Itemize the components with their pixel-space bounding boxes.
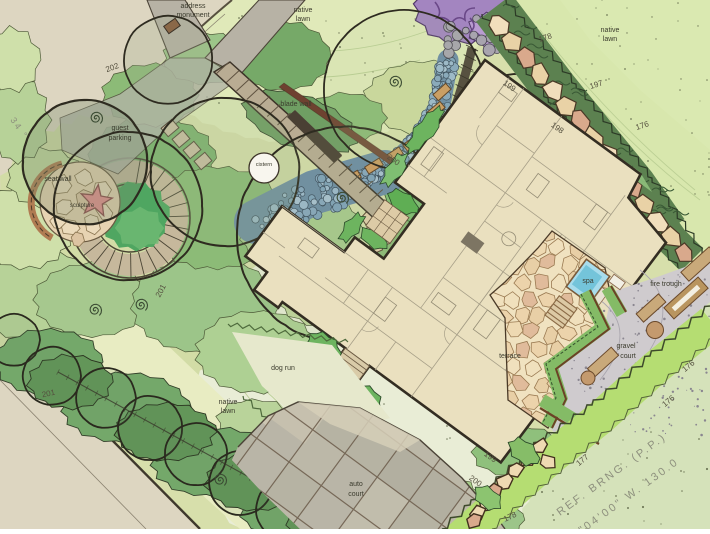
svg-text:guest: guest: [111, 125, 128, 132]
svg-text:seat wall: seat wall: [44, 176, 72, 183]
svg-text:fire trough: fire trough: [650, 281, 682, 288]
svg-text:native: native: [219, 399, 238, 406]
svg-text:terrace: terrace: [499, 353, 521, 360]
svg-text:court: court: [620, 353, 636, 360]
svg-text:address: address: [181, 3, 206, 10]
svg-text:lawn: lawn: [296, 16, 311, 23]
svg-text:lawn: lawn: [221, 408, 236, 415]
svg-text:native: native: [601, 27, 620, 34]
svg-text:blade wall: blade wall: [280, 101, 312, 108]
svg-text:cistern: cistern: [256, 162, 272, 168]
svg-text:lawn: lawn: [603, 36, 618, 43]
svg-text:sculpture: sculpture: [70, 203, 95, 209]
svg-text:monument: monument: [176, 12, 209, 19]
svg-text:parking: parking: [109, 135, 132, 142]
svg-text:spa: spa: [582, 278, 593, 285]
svg-text:gravel: gravel: [616, 343, 636, 350]
svg-text:auto: auto: [349, 481, 363, 488]
svg-text:native: native: [294, 7, 313, 14]
svg-text:court: court: [348, 491, 364, 498]
svg-text:dog run: dog run: [271, 365, 295, 372]
